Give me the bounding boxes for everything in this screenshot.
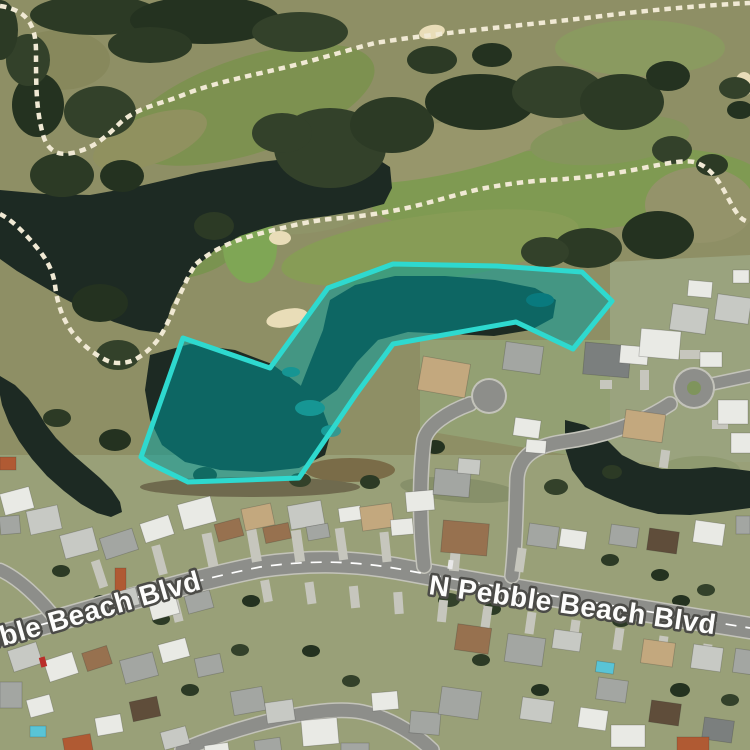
cul-de-sac <box>473 380 505 412</box>
house-roof <box>504 633 546 666</box>
house-roof <box>0 457 16 470</box>
tree <box>108 27 192 63</box>
house-roof <box>454 624 491 654</box>
house-roof <box>265 699 296 724</box>
tree <box>697 584 715 596</box>
house-roof <box>359 503 394 531</box>
driveway <box>680 350 700 359</box>
house-roof <box>301 717 339 746</box>
house-roof <box>230 686 266 715</box>
house-roof <box>405 490 435 512</box>
tree <box>350 97 434 153</box>
house-roof <box>390 518 413 536</box>
tree <box>242 595 260 607</box>
tree <box>52 565 70 577</box>
tree <box>302 645 320 657</box>
driveway <box>640 370 649 390</box>
house-roof <box>438 686 482 719</box>
house-roof <box>732 648 750 675</box>
house-roof <box>457 458 480 475</box>
driveway <box>600 380 612 389</box>
tree <box>651 569 669 581</box>
house-roof <box>622 409 666 442</box>
house-roof <box>502 341 544 374</box>
tree <box>99 429 131 451</box>
house-roof <box>0 515 21 535</box>
grass-patch <box>305 458 395 482</box>
house-roof <box>0 682 22 708</box>
house-roof <box>731 433 750 453</box>
tree <box>652 136 692 164</box>
tree <box>622 211 694 259</box>
tree <box>194 212 234 240</box>
house-roof <box>513 417 541 438</box>
tree <box>360 475 380 489</box>
house-roof <box>639 328 681 359</box>
house-roof <box>736 516 750 534</box>
house-roof <box>596 677 629 703</box>
house-roof <box>30 726 46 737</box>
house-roof <box>718 400 748 424</box>
house-roof <box>649 700 682 726</box>
tree <box>670 683 690 697</box>
tree <box>231 644 249 656</box>
driveway <box>393 592 404 615</box>
tree <box>646 61 690 91</box>
tree <box>521 237 569 267</box>
house-roof <box>693 520 726 546</box>
house-roof <box>669 304 708 335</box>
tree <box>30 153 94 197</box>
tree <box>407 46 457 74</box>
house-roof <box>409 711 441 736</box>
house-roof <box>733 270 749 283</box>
house-roof <box>647 528 680 554</box>
house-roof <box>611 725 645 747</box>
house-roof <box>525 439 546 454</box>
house-roof <box>609 524 640 548</box>
house-roof <box>578 707 609 731</box>
tree <box>181 684 199 696</box>
tree <box>100 160 144 192</box>
house-roof <box>341 743 369 750</box>
tree <box>719 77 750 99</box>
house-roof <box>690 644 723 672</box>
house-roof <box>677 737 709 750</box>
house-roof <box>552 629 582 652</box>
cul-de-sac-island <box>687 381 701 395</box>
tree <box>601 554 619 566</box>
tree <box>64 86 136 138</box>
house-roof <box>441 520 490 556</box>
tree <box>721 694 739 706</box>
tree <box>342 675 360 687</box>
road <box>712 376 750 384</box>
tree <box>252 12 348 52</box>
house-roof <box>687 280 712 298</box>
tree <box>472 654 490 666</box>
house-roof <box>640 639 675 667</box>
house-roof <box>714 294 750 324</box>
house-roof <box>371 691 398 711</box>
house-roof <box>527 523 560 549</box>
house-roof <box>338 506 362 523</box>
satellite-map[interactable]: bble Beach BlvdN Pebble Beach Blvd <box>0 0 750 750</box>
house-roof <box>520 697 555 723</box>
tree <box>472 43 512 67</box>
tree <box>544 479 568 495</box>
tree <box>43 409 71 427</box>
tree <box>96 340 140 370</box>
house-roof <box>559 528 587 549</box>
sand-bunker <box>269 231 291 245</box>
tree <box>602 465 622 479</box>
house-roof <box>700 352 722 367</box>
house-roof <box>595 661 614 674</box>
tree <box>252 113 312 153</box>
map-canvas[interactable]: bble Beach BlvdN Pebble Beach Blvd <box>0 0 750 750</box>
grass-patch <box>555 20 725 76</box>
tree <box>72 284 128 322</box>
tree <box>531 684 549 696</box>
